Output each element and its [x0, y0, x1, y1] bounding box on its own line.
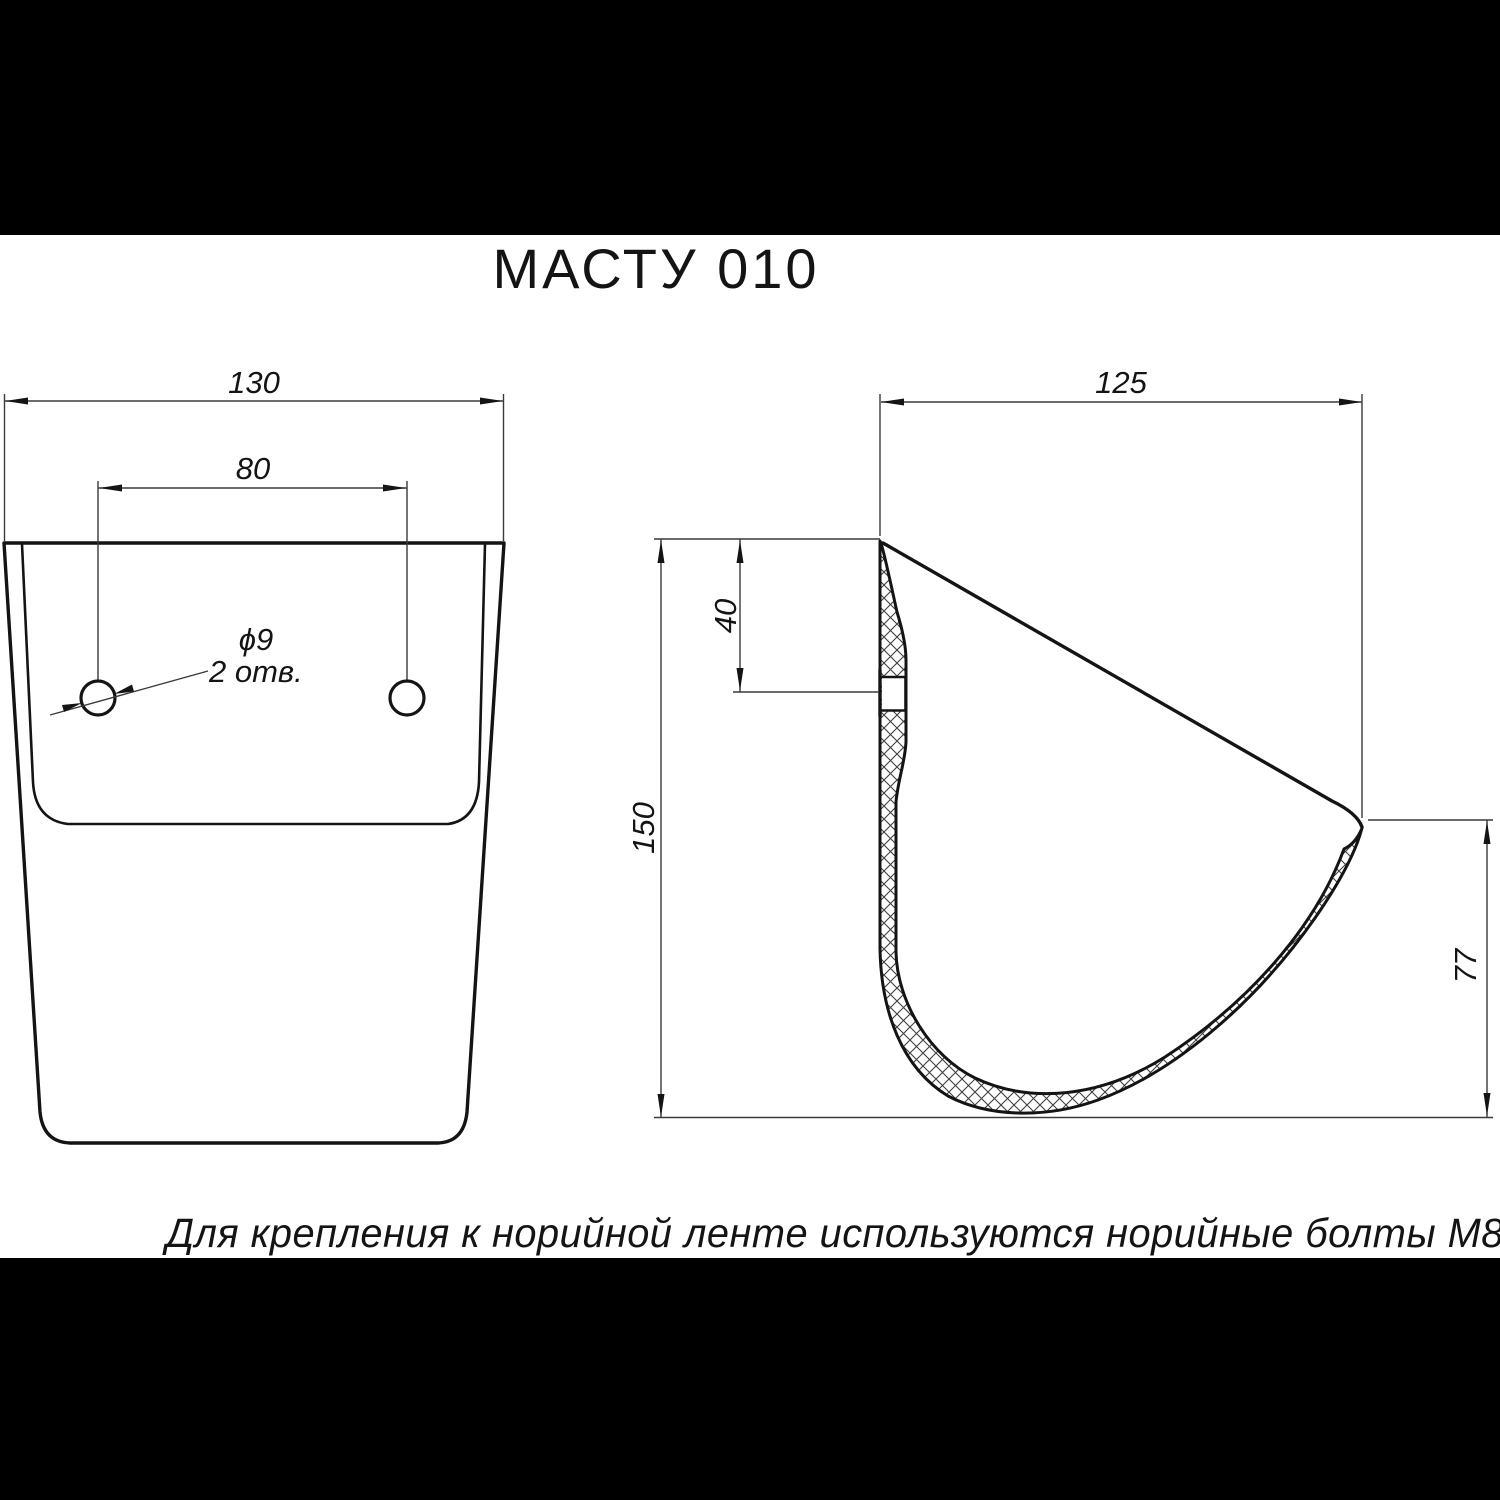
mounting-hole-right [390, 681, 424, 715]
dim-arrow [881, 399, 904, 406]
dim-depth-value: 125 [1095, 365, 1147, 400]
dim-arrow [480, 398, 503, 405]
bucket-wall-section [880, 541, 1362, 1113]
dim-arrow [658, 540, 665, 563]
hole-count-label: 2 отв. [208, 654, 303, 689]
technical-drawing: 130 80 ϕ9 2 отв. [0, 0, 1500, 1500]
dim-arrow [1484, 821, 1491, 844]
dim-arrow [658, 1094, 665, 1117]
dim-width-value: 130 [228, 365, 280, 400]
dim-arrow [1339, 399, 1362, 406]
dim-arrow [99, 485, 122, 492]
dim-arrow [737, 540, 744, 563]
hole-diameter-label: ϕ9 [239, 622, 273, 657]
dim-hole-offset-value: 40 [708, 599, 743, 633]
side-section-view: 125 150 40 77 [626, 365, 1493, 1118]
dim-height-value: 150 [626, 802, 661, 854]
dim-arrow [737, 668, 744, 691]
dim-lip-height-value: 77 [1448, 947, 1483, 983]
front-view: 130 80 ϕ9 2 отв. [4, 365, 504, 1143]
dim-hole-spacing-value: 80 [236, 451, 270, 486]
bolt-hole-gap [882, 678, 906, 710]
footer-note: Для крепления к норийной ленте использую… [166, 1209, 1500, 1257]
dim-arrow [5, 398, 28, 405]
dim-arrow [1484, 1093, 1491, 1116]
bucket-lip-edge [883, 543, 1362, 827]
dim-arrow [383, 485, 406, 492]
